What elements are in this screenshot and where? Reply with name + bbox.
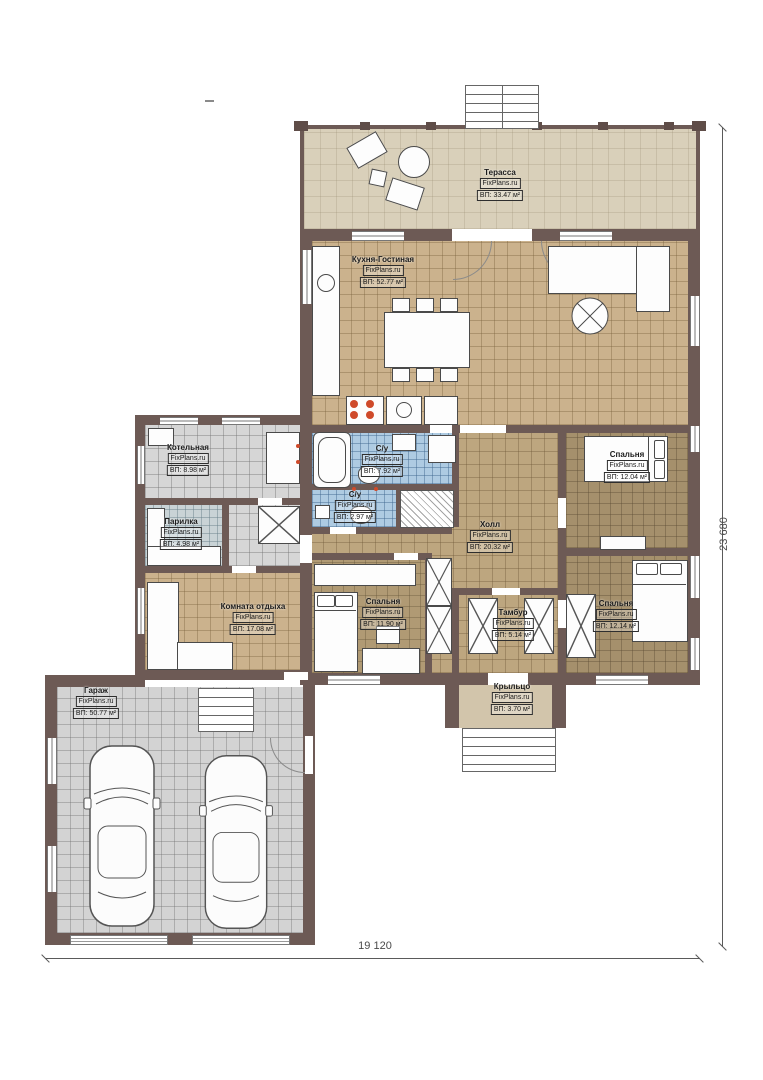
room-name: Спальня xyxy=(366,597,401,606)
pillow xyxy=(660,563,682,575)
watermark: FixPlans.ru xyxy=(160,527,201,538)
window xyxy=(137,588,145,634)
door-opening xyxy=(258,498,282,505)
watermark: FixPlans.ru xyxy=(595,609,636,620)
room-name: С/у xyxy=(349,490,361,499)
window xyxy=(690,638,700,670)
garage-door xyxy=(192,935,290,945)
room-name: Холл xyxy=(480,520,500,529)
room-area: ВП: 8.98 м² xyxy=(167,465,209,476)
round-table-icon xyxy=(570,296,610,336)
wall-segment xyxy=(45,675,57,945)
door-opening xyxy=(452,229,532,241)
wardrobe xyxy=(426,606,452,654)
door-opening xyxy=(558,498,566,528)
bed-line xyxy=(632,584,686,585)
door-opening xyxy=(305,736,313,774)
room-label-kitchen-living: Кухня-Гостиная FixPlans.ru ВП: 52.77 м² xyxy=(352,255,414,288)
room-name: Котельная xyxy=(167,443,209,452)
side-table xyxy=(369,169,388,188)
door-opening xyxy=(300,535,312,563)
dimension-line-bottom xyxy=(45,958,700,959)
room-name: С/у xyxy=(376,444,388,453)
partition xyxy=(145,566,302,573)
room-name: Гараж xyxy=(84,686,108,695)
pillow xyxy=(654,460,665,479)
kitchen-sink xyxy=(317,274,335,292)
window xyxy=(222,417,260,425)
room-name: Тамбур xyxy=(498,608,527,617)
door-opening xyxy=(330,527,356,534)
bathtub-basin xyxy=(318,437,346,483)
watermark: FixPlans.ru xyxy=(361,454,402,465)
terrace-wall-left xyxy=(300,125,304,230)
room-name: Спальня xyxy=(599,599,634,608)
chair xyxy=(416,368,434,382)
room-label-bedroom2: Спальня FixPlans.ru ВП: 12.14 м² xyxy=(593,599,639,632)
bench xyxy=(600,536,646,550)
room-area: ВП: 2.97 м² xyxy=(334,512,376,523)
door-opening xyxy=(558,600,566,628)
car xyxy=(194,750,278,934)
room-label-restroom: Комната отдыха FixPlans.ru ВП: 17.08 м² xyxy=(221,602,286,635)
door-opening xyxy=(284,672,308,680)
dining-table xyxy=(384,312,470,368)
room-area: ВП: 17.08 м² xyxy=(230,624,276,635)
room-area: ВП: 4.98 м² xyxy=(160,539,202,550)
window xyxy=(690,426,700,452)
sofa-corner xyxy=(636,246,670,312)
dimension-height-label: 23 680 xyxy=(718,504,730,564)
room-area: ВП: 12.04 м² xyxy=(604,472,650,483)
room-label-sauna: Парилка FixPlans.ru ВП: 4.98 м² xyxy=(160,517,202,550)
watermark: FixPlans.ru xyxy=(167,453,208,464)
pillow xyxy=(654,440,665,459)
stairs-divider xyxy=(502,86,503,128)
chair xyxy=(440,298,458,312)
window xyxy=(47,738,57,784)
wall-segment xyxy=(303,685,315,933)
door-opening xyxy=(232,566,256,573)
watermark: FixPlans.ru xyxy=(362,607,403,618)
washing-machine xyxy=(428,435,456,463)
floor-plan: Терасса FixPlans.ru ВП: 33.47 м² Кухня-Г… xyxy=(0,0,763,1080)
window xyxy=(328,675,380,685)
window xyxy=(137,446,145,484)
window xyxy=(690,556,700,598)
burner xyxy=(350,400,358,408)
partition xyxy=(558,433,566,673)
room-name: Комната отдыха xyxy=(221,602,286,611)
boiler-unit xyxy=(266,432,300,484)
window xyxy=(47,846,57,892)
porch-wall xyxy=(552,685,566,728)
window xyxy=(160,417,198,425)
desk xyxy=(362,648,420,674)
room-area: ВП: 3.70 м² xyxy=(491,704,533,715)
room-label-bedroom1: Спальня FixPlans.ru ВП: 12.04 м² xyxy=(604,450,650,483)
room-area: ВП: 11.90 м² xyxy=(360,619,406,630)
room-label-terrace: Терасса FixPlans.ru ВП: 33.47 м² xyxy=(477,168,523,201)
room-area: ВП: 20.32 м² xyxy=(467,542,513,553)
watermark: FixPlans.ru xyxy=(75,696,116,707)
door-opening xyxy=(430,425,452,433)
room-name: Терасса xyxy=(484,168,516,177)
terrace-stairs xyxy=(465,85,539,129)
sofa xyxy=(548,246,642,294)
watermark: FixPlans.ru xyxy=(606,460,647,471)
porch-wall xyxy=(445,685,459,728)
room-label-boiler: Котельная FixPlans.ru ВП: 8.98 м² xyxy=(167,443,209,476)
room-area: ВП: 5.14 м² xyxy=(492,630,534,641)
room-area: ВП: 12.14 м² xyxy=(593,621,639,632)
wardrobe xyxy=(426,558,452,606)
terrace-column xyxy=(692,121,706,131)
room-label-tambour: Тамбур FixPlans.ru ВП: 5.14 м² xyxy=(492,608,534,641)
dresser xyxy=(314,564,416,586)
room-area: ВП: 50.77 м² xyxy=(73,708,119,719)
room-area: ВП: 33.47 м² xyxy=(477,190,523,201)
stray-mark xyxy=(205,100,214,102)
chair xyxy=(440,368,458,382)
pillow xyxy=(636,563,658,575)
pillow xyxy=(335,595,353,607)
room-name: Кухня-Гостиная xyxy=(352,255,414,264)
burner xyxy=(366,411,374,419)
rest-sofa xyxy=(147,582,179,670)
room-label-bathroom1: С/у FixPlans.ru ВП: 7.92 м² xyxy=(361,444,403,477)
room-label-garage: Гараж FixPlans.ru ВП: 50.77 м² xyxy=(73,686,119,719)
closet-shelves xyxy=(400,490,454,528)
window xyxy=(352,231,404,241)
window xyxy=(596,675,648,685)
terrace-column xyxy=(360,122,370,130)
burner xyxy=(366,400,374,408)
terrace-column xyxy=(294,121,308,131)
window xyxy=(302,250,312,304)
watermark: FixPlans.ru xyxy=(362,265,403,276)
partition xyxy=(222,505,229,573)
appliance xyxy=(424,396,458,425)
terrace-column xyxy=(664,122,674,130)
porch-stairs xyxy=(462,728,556,772)
chair xyxy=(416,298,434,312)
garage-stairs xyxy=(198,688,254,732)
bed-line xyxy=(314,610,356,611)
pillow xyxy=(317,595,335,607)
door-opening xyxy=(460,425,506,433)
watermark: FixPlans.ru xyxy=(334,500,375,511)
chair xyxy=(392,298,410,312)
heat-point xyxy=(296,444,300,448)
watermark: FixPlans.ru xyxy=(232,612,273,623)
dimension-width-label: 19 120 xyxy=(340,940,410,952)
room-label-bathroom2: С/у FixPlans.ru ВП: 2.97 м² xyxy=(334,490,376,523)
window xyxy=(560,231,612,241)
watermark: FixPlans.ru xyxy=(469,530,510,541)
terrace-column xyxy=(598,122,608,130)
watermark: FixPlans.ru xyxy=(491,692,532,703)
room-name: Парилка xyxy=(164,517,198,526)
room-area: ВП: 52.77 м² xyxy=(360,277,406,288)
partition xyxy=(452,595,459,675)
door-opening xyxy=(492,588,520,595)
terrace-table xyxy=(398,146,430,178)
garage-door xyxy=(70,935,168,945)
rest-sofa xyxy=(177,642,233,670)
heat-point xyxy=(296,460,300,464)
watermark: FixPlans.ru xyxy=(492,618,533,629)
room-label-bedroom3: Спальня FixPlans.ru ВП: 11.90 м² xyxy=(360,597,406,630)
room-area: ВП: 7.92 м² xyxy=(361,466,403,477)
door-opening xyxy=(394,553,418,560)
car xyxy=(82,740,162,932)
terrace-column xyxy=(426,122,436,130)
shower-cabin xyxy=(258,506,300,544)
window xyxy=(690,296,700,346)
wardrobe xyxy=(566,594,596,658)
room-label-porch: Крыльцо FixPlans.ru ВП: 3.70 м² xyxy=(491,682,533,715)
chair xyxy=(392,368,410,382)
watermark: FixPlans.ru xyxy=(479,178,520,189)
kitchen-counter xyxy=(312,246,340,396)
room-name: Спальня xyxy=(610,450,645,459)
room-name: Крыльцо xyxy=(494,682,530,691)
washbasin xyxy=(315,505,330,519)
sink-bowl xyxy=(396,402,412,418)
room-label-hall: Холл FixPlans.ru ВП: 20.32 м² xyxy=(467,520,513,553)
bathtub xyxy=(313,432,351,488)
burner xyxy=(350,411,358,419)
terrace-wall-right xyxy=(696,125,700,230)
